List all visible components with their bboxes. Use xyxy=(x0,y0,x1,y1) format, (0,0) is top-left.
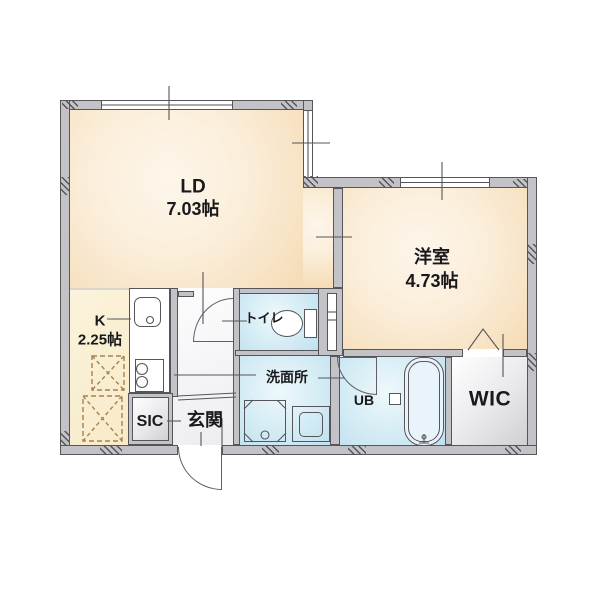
room-label-sic: SIC xyxy=(137,414,164,430)
window-western-top xyxy=(400,177,490,188)
room-label-ld: LD xyxy=(180,178,205,197)
kitchen-sink-icon xyxy=(134,297,161,327)
washing-machine-pan-icon xyxy=(244,400,286,442)
wall-ub-wic xyxy=(445,357,452,445)
room-label-wic: WIC xyxy=(469,389,511,410)
pipe-space-inset xyxy=(327,293,337,351)
room-western-floor xyxy=(343,188,527,349)
wall-hatch xyxy=(528,244,536,264)
wall-hatch xyxy=(348,446,366,454)
room-label-washroom: 洗面所 xyxy=(266,370,308,384)
wall-hatch xyxy=(262,446,279,454)
wall-hatch xyxy=(61,431,69,446)
outer-wall-left xyxy=(60,100,70,455)
wall-hatch xyxy=(513,179,528,187)
room-size-western: 4.73帖 xyxy=(405,272,458,290)
wall-hatch xyxy=(379,178,394,187)
room-size-ld: 7.03帖 xyxy=(166,200,219,218)
room-label-entrance: 玄関 xyxy=(187,411,223,429)
wall-hatch xyxy=(528,353,536,371)
wall-ld-western xyxy=(333,188,343,288)
room-label-unit-bath: UB xyxy=(354,393,374,407)
window-ld-top xyxy=(101,100,233,110)
wall-hatch xyxy=(61,177,69,195)
room-label-toilet: トイレ xyxy=(244,312,283,325)
room-label-kitchen: K xyxy=(95,314,106,329)
room-label-western: 洋室 xyxy=(414,248,450,266)
room-size-kitchen: 2.25帖 xyxy=(78,333,122,348)
wall-hatch xyxy=(505,446,521,454)
wall-hatch xyxy=(100,446,122,454)
vanity-basin-icon xyxy=(299,412,323,437)
wall-hatch xyxy=(281,101,297,109)
bathtub-inner xyxy=(408,361,440,442)
wall-western-bottom-right xyxy=(503,349,527,357)
wall-hatch xyxy=(62,101,78,109)
toilet-tank-icon xyxy=(304,309,317,338)
room-living-dining-floor-ext xyxy=(303,188,333,288)
outer-wall-right xyxy=(527,177,537,455)
stove-icon xyxy=(135,359,164,392)
ub-wall-box-icon xyxy=(389,393,401,405)
wall-hatch xyxy=(303,176,318,187)
floor-plan: LD 7.03帖 洋室 4.73帖 K 2.25帖 トイレ 洗面所 UB WIC… xyxy=(0,0,600,600)
wall-ld-door-stub xyxy=(178,291,194,297)
wall-hallway-right xyxy=(233,288,240,445)
entrance-door-arc xyxy=(178,447,222,490)
window-ld-side xyxy=(303,110,313,178)
wall-western-bottom-left xyxy=(343,349,463,357)
wall-hallway-left xyxy=(170,288,178,397)
